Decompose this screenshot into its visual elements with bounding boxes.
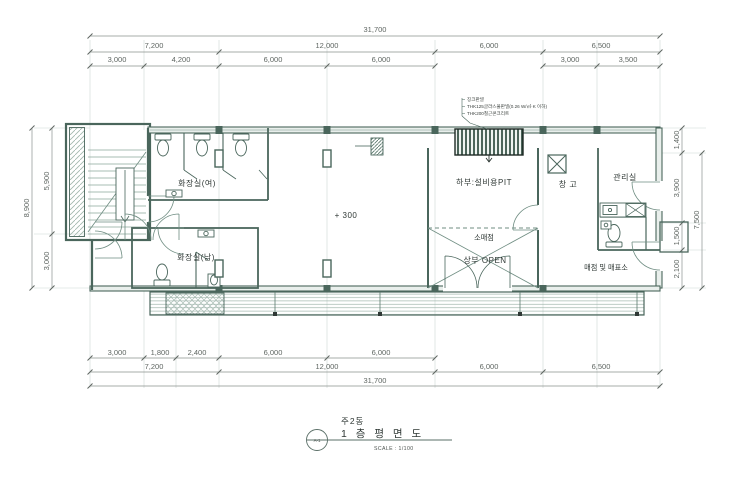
dim-bot2-2: 6,000 <box>480 362 499 371</box>
dim-right-c: 2,100 <box>672 260 681 279</box>
label-kiosk: 매점 및 매표소 <box>584 263 628 272</box>
door-swings <box>95 182 660 288</box>
dim-top3-0: 3,000 <box>108 55 127 64</box>
dim-bot1-3: 6,000 <box>264 348 283 357</box>
dim-right-b: 1,500 <box>672 227 681 246</box>
dim-bot1-1: 1,800 <box>151 348 170 357</box>
dim-top2-1: 12,000 <box>316 41 339 50</box>
label-retail: 소매점 <box>474 233 494 242</box>
label-open-above: 상부 OPEN <box>463 255 506 265</box>
sheet-number: A-1 <box>314 438 321 443</box>
dim-top-total: 31,700 <box>364 25 387 34</box>
columns <box>215 150 331 277</box>
dim-top3-5: 3,500 <box>619 55 638 64</box>
dim-left-upper: 5,900 <box>42 172 51 191</box>
plumbing-fixtures <box>154 134 646 287</box>
dim-bot1-0: 3,000 <box>108 348 127 357</box>
room-labels: 화장실(여) 화장실(남) + 300 하부:설비용PIT 소매점 상부 OPE… <box>177 172 637 272</box>
dim-bot2-1: 12,000 <box>316 362 339 371</box>
dim-right-top: 1,400 <box>672 131 681 150</box>
floor-plan-sheet: 31,700 7,200 12,000 6,000 6,500 3,000 4,… <box>0 0 739 485</box>
staircase <box>88 150 146 234</box>
dim-top3-2: 6,000 <box>264 55 283 64</box>
dimension-text-left: 8,900 5,900 3,000 <box>22 172 51 271</box>
dim-top2-0: 7,200 <box>145 41 164 50</box>
dim-top3-4: 3,000 <box>561 55 580 64</box>
dim-top3-1: 4,200 <box>172 55 191 64</box>
note-line-3: THK200철근콘크리트 <box>467 110 509 117</box>
deck <box>150 292 644 316</box>
dim-left-lower: 3,000 <box>42 252 51 271</box>
building-walls <box>66 124 662 292</box>
column-hatch-marker <box>355 138 383 155</box>
dim-left-total: 8,900 <box>22 199 31 218</box>
dim-top2-2: 6,000 <box>480 41 499 50</box>
building-name: 주2동 <box>341 416 364 426</box>
note-line-2: THK125글라스울판넬(0.26 W/㎡·K 이하) <box>467 103 547 110</box>
drawing-scale: SCALE : 1/100 <box>374 446 414 452</box>
note-line-1: 징크판넬 <box>467 96 484 102</box>
floor-plan-canvas: 31,700 7,200 12,000 6,000 6,500 3,000 4,… <box>0 0 739 485</box>
roof-louver <box>455 129 523 162</box>
label-level: + 300 <box>335 211 358 220</box>
drawing-title: 1 층 평 면 도 <box>341 428 424 440</box>
dimension-text-bottom: 3,000 1,800 2,400 6,000 6,000 7,200 12,0… <box>108 348 611 385</box>
dim-bot2-0: 7,200 <box>145 362 164 371</box>
dimension-text-top: 31,700 7,200 12,000 6,000 6,500 3,000 4,… <box>108 25 638 64</box>
material-note: 징크판넬 THK125글라스울판넬(0.26 W/㎡·K 이하) THK200철… <box>462 96 547 129</box>
dim-top3-3: 6,000 <box>372 55 391 64</box>
label-pit: 하부:설비용PIT <box>456 177 512 187</box>
dim-right-total: 7,500 <box>692 211 701 230</box>
dim-bot1-2: 2,400 <box>188 348 207 357</box>
label-toilet-women: 화장실(여) <box>178 178 216 188</box>
dim-top2-3: 6,500 <box>592 41 611 50</box>
dim-bot2-3: 6,500 <box>592 362 611 371</box>
dim-right-a: 3,900 <box>672 179 681 198</box>
label-admin: 관리실 <box>613 172 637 182</box>
label-storage: 창 고 <box>559 180 577 189</box>
label-toilet-men: 화장실(남) <box>177 252 215 262</box>
dim-bot1-4: 6,000 <box>372 348 391 357</box>
title-block: A-1 주2동 1 층 평 면 도 SCALE : 1/100 <box>307 416 453 452</box>
dim-bot-total: 31,700 <box>364 376 387 385</box>
